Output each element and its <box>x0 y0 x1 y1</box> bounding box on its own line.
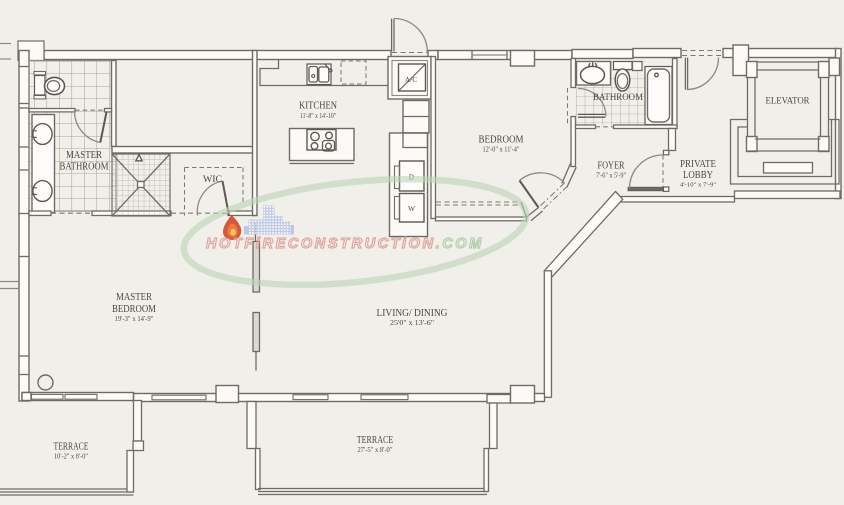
svg-text:4'-10" x 7'-9": 4'-10" x 7'-9" <box>680 182 716 189</box>
svg-text:A/C: A/C <box>405 76 417 84</box>
svg-text:27'-5" x 8'-0": 27'-5" x 8'-0" <box>358 447 393 454</box>
svg-text:25'0" x 13'-6": 25'0" x 13'-6" <box>390 320 434 327</box>
svg-text:HOTFiRECONSTRUCTiON.COM: HOTFiRECONSTRUCTiON.COM <box>206 236 484 252</box>
svg-text:10'-2" x 8'-0": 10'-2" x 8'-0" <box>54 454 88 461</box>
svg-text:11'-8" x 14'-10": 11'-8" x 14'-10" <box>300 113 336 120</box>
svg-text:BATHROOM: BATHROOM <box>593 92 643 103</box>
svg-text:12'-0" x 11'-4": 12'-0" x 11'-4" <box>483 147 520 154</box>
svg-text:W: W <box>408 204 416 213</box>
svg-text:LOBBY: LOBBY <box>683 170 714 181</box>
svg-text:BATHROOM: BATHROOM <box>60 162 109 173</box>
svg-text:KITCHEN: KITCHEN <box>299 101 338 112</box>
svg-text:MASTER: MASTER <box>116 292 152 303</box>
svg-text:7'-6" x 5'-9": 7'-6" x 5'-9" <box>596 173 626 180</box>
svg-text:LIVING/ DINING: LIVING/ DINING <box>377 308 449 319</box>
svg-text:FOYER: FOYER <box>598 161 625 172</box>
svg-text:TERRACE: TERRACE <box>54 442 89 453</box>
svg-text:19'-3" x 14'-9": 19'-3" x 14'-9" <box>115 316 154 323</box>
svg-text:TERRACE: TERRACE <box>357 435 394 446</box>
svg-text:BEDROOM: BEDROOM <box>112 304 156 315</box>
svg-text:MASTER: MASTER <box>66 150 102 161</box>
svg-text:BEDROOM: BEDROOM <box>479 135 524 146</box>
svg-text:WIC: WIC <box>203 174 222 184</box>
svg-text:PRIVATE: PRIVATE <box>680 159 716 170</box>
svg-text:ELEVATOR: ELEVATOR <box>766 96 810 107</box>
